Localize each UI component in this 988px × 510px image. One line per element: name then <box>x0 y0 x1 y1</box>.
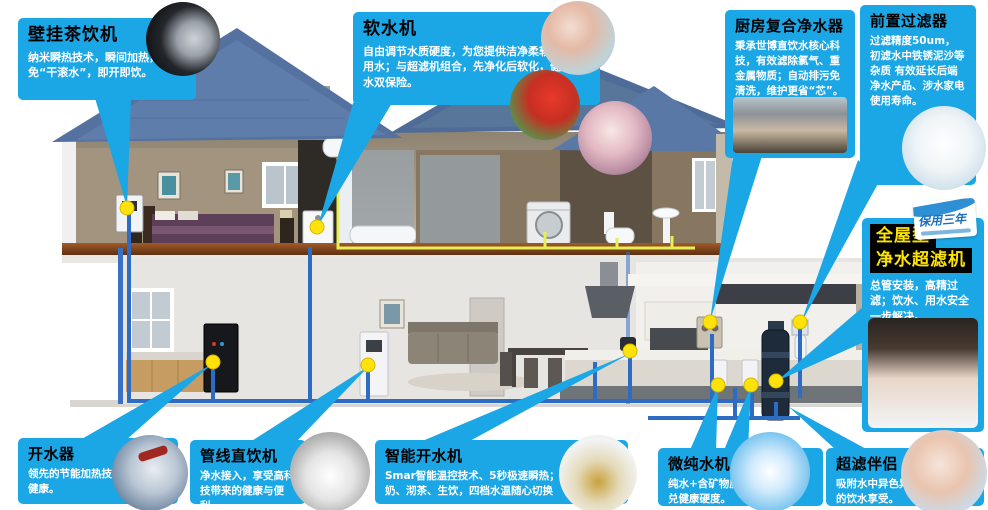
callout-title: 厨房复合净水器 <box>735 18 845 35</box>
bed-blanket <box>152 226 274 234</box>
dot-softener <box>310 220 324 234</box>
callout-pipeline-dispenser: 管线直饮机 净水接入，享受高科技带来的健康与便利。 <box>190 440 306 504</box>
dot-micro-pure-2 <box>744 378 758 392</box>
table-leg <box>512 355 516 387</box>
laundry-photo <box>510 70 580 140</box>
man-drinking-photo <box>868 318 978 428</box>
kitchen-counter-top <box>126 352 204 360</box>
toilet <box>606 228 634 244</box>
bathtub <box>350 226 416 244</box>
faucet-handle <box>137 445 168 463</box>
dot-pipeline <box>361 358 375 372</box>
sofa <box>408 332 498 364</box>
cutaway-edge-left <box>62 132 76 245</box>
mirror-panel <box>420 155 500 243</box>
picture-art <box>162 176 176 195</box>
dining-chair <box>500 352 512 386</box>
sink-pedestal <box>663 214 670 244</box>
iced-water-photo <box>290 432 370 510</box>
device-band <box>762 392 789 398</box>
callout-body: 净水接入，享受高科技带来的健康与便利。 <box>200 469 296 510</box>
dot-boiler <box>206 355 220 369</box>
cutaway-frame-blue-left <box>118 248 123 404</box>
dark-canopy-roof <box>716 284 862 304</box>
tea-machine-closeup-photo <box>146 2 220 76</box>
sink-basin <box>653 208 679 218</box>
nightstand <box>280 218 294 244</box>
dot-micro-pure-1 <box>711 378 725 392</box>
infographic-canvas: 壁挂茶饮机 纳米瞬热技术，瞬间加热，避免“干滚水”，即开即饮。 软水机 自由调节… <box>0 0 988 510</box>
shower-photo <box>541 1 615 75</box>
warranty-badge: 保用三年 <box>913 198 977 240</box>
picture-art <box>228 173 240 190</box>
kitchen-family-photo <box>733 97 847 153</box>
dot-whole-house <box>769 374 783 388</box>
bedside-lamp <box>280 210 292 218</box>
woman-drinking-photo <box>901 430 987 510</box>
hood-duct <box>600 262 618 286</box>
glass-teapot-photo <box>559 435 637 510</box>
callout-body: 过滤精度50um，初滤水中铁锈泥沙等杂质 有效延长后端净水产品、涉水家电使用寿命… <box>870 34 966 109</box>
water-splash-photo <box>730 432 810 510</box>
dot-prefilter <box>793 315 807 329</box>
pillow <box>155 211 175 220</box>
callout-title: 前置过滤器 <box>870 13 966 30</box>
picture-art <box>384 304 400 324</box>
faucet-photo <box>112 435 188 510</box>
filter-product-photo <box>902 106 986 190</box>
washing-machine-door <box>536 212 562 238</box>
face-wash-photo <box>578 101 652 175</box>
pointer-uf-partner <box>789 407 868 450</box>
callout-body: 秉承世博直饮水核心科技，有效滤除氯气、重金属物质；自动排污免清洗，维护更省“芯”… <box>735 39 845 99</box>
device-band <box>762 352 789 358</box>
badge-text: 保用三年 <box>918 210 967 230</box>
dot-smart-boiler <box>623 344 637 358</box>
title-line2: 净水超滤机 <box>870 248 972 272</box>
device-led <box>220 342 224 346</box>
dining-chair <box>524 358 538 388</box>
badge-subline <box>921 228 971 235</box>
dot-kitchen-purifier <box>703 315 717 329</box>
device-panel <box>366 340 382 352</box>
callout-title: 管线直饮机 <box>200 448 296 465</box>
dot-wall-tea <box>120 201 134 215</box>
range-hood <box>585 286 635 318</box>
device-led <box>212 342 216 346</box>
pillow <box>178 211 198 220</box>
